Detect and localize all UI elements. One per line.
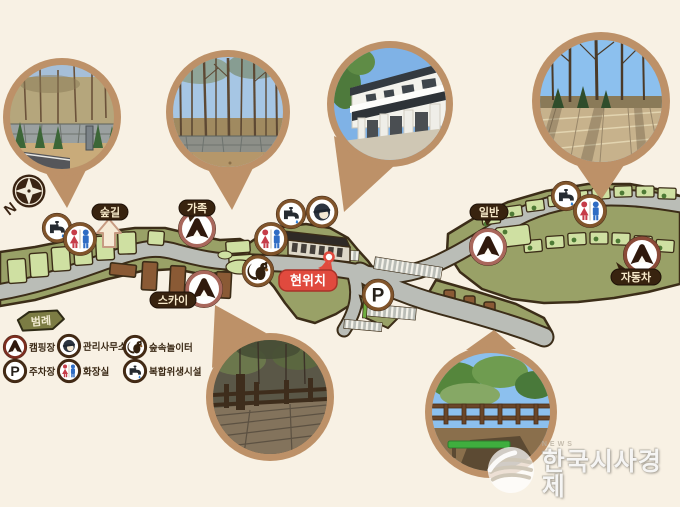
parking-icon: P — [362, 279, 393, 310]
map-overlay: N — [0, 0, 680, 507]
squirrel-icon — [123, 335, 146, 358]
forest-trail-arrow — [97, 219, 121, 247]
parking-icon: P — [3, 359, 26, 382]
label-sky: 스카이 — [150, 292, 196, 308]
label-forest-trail: 숲길 — [92, 204, 128, 220]
legend-label: 캠핑장 — [29, 342, 55, 354]
svg-text:일반: 일반 — [479, 205, 499, 219]
legend-title-banner: 범례 — [17, 309, 64, 332]
squirrel-icon — [242, 255, 273, 286]
campground-map-infographic: N — [0, 0, 680, 507]
svg-text:자동차: 자동차 — [621, 270, 652, 284]
restroom-icon — [57, 359, 80, 382]
legend-label: 주차장 — [29, 366, 55, 378]
legend-label: 화장실 — [83, 366, 109, 378]
legend-label: 관리사무소 — [83, 341, 127, 353]
svg-text:숲길: 숲길 — [100, 206, 120, 219]
faucet-icon — [277, 200, 306, 229]
current-location-marker: 현위치 — [279, 253, 337, 292]
compass-rose: N — [1, 175, 46, 220]
current-location-label: 현위치 — [290, 273, 326, 288]
restroom-icon — [574, 195, 607, 228]
legend: 범례 캠핑장 관리사무소 숲속놀이터 — [3, 309, 201, 383]
office-manager-icon — [57, 334, 80, 357]
svg-text:P: P — [10, 363, 19, 379]
restroom-icon — [64, 223, 97, 256]
tent-icon — [3, 335, 26, 358]
restroom-icon — [255, 223, 288, 256]
legend-label: 숲속놀이터 — [149, 342, 193, 354]
svg-text:P: P — [372, 286, 385, 307]
tent-icon-general — [470, 229, 507, 266]
label-general: 일반 — [470, 204, 508, 226]
faucet-icon — [123, 359, 146, 382]
tent-icon-car — [624, 237, 661, 274]
svg-text:스카이: 스카이 — [158, 293, 188, 307]
svg-text:가족: 가족 — [187, 201, 207, 215]
legend-label: 복합위생시설 — [149, 366, 202, 378]
office-manager-icon — [306, 196, 337, 227]
